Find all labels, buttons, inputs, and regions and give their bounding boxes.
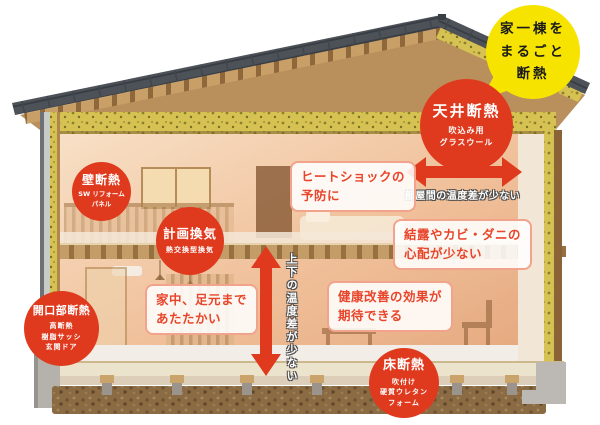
benefit-condensation: 結露やカビ・ダニの 心配が少ない xyxy=(393,219,532,270)
right-foundation-footing xyxy=(522,362,566,404)
whole-house-bubble: 家一棟を まるごと 断熱 xyxy=(486,5,580,99)
bubble-line: 家一棟を xyxy=(500,18,566,41)
benefit-line: 健康改善の効果が xyxy=(338,287,442,306)
benefit-health: 健康改善の効果が 期待できる xyxy=(327,281,453,332)
badge-subtitle: 吹付け xyxy=(392,377,416,388)
badge-subtitle: 吹込み用 xyxy=(449,125,485,137)
badge-subtitle: 熱交換型換気 xyxy=(166,245,214,256)
badge-subtitle: 玄関ドア xyxy=(46,342,78,353)
foundation xyxy=(34,330,566,414)
pendant-lamp xyxy=(155,274,165,280)
roof-left-slope xyxy=(12,15,444,115)
roof-ridge xyxy=(438,14,446,20)
window xyxy=(142,168,210,208)
benefit-heatshock: ヒートショックの 予防に xyxy=(290,161,416,212)
air-conditioner xyxy=(112,266,142,276)
bed xyxy=(300,216,404,240)
badge-subtitle: 高断熱 xyxy=(50,321,74,332)
badge-ceiling-insulation: 天井断熱 吹込み用 グラスウール xyxy=(420,79,513,172)
badge-title: 開口部断熱 xyxy=(33,304,91,318)
floor-piers xyxy=(100,375,519,395)
rafter-band xyxy=(24,26,445,124)
benefit-line: 予防に xyxy=(301,186,405,205)
benefit-line: 心配が少ない xyxy=(404,244,521,263)
badge-subtitle: 硬質ウレタン xyxy=(380,387,428,398)
badge-title: 計画換気 xyxy=(163,226,217,242)
cabinet xyxy=(256,166,292,238)
floor-structure xyxy=(40,361,564,385)
badge-wall-insulation: 壁断熱 SW リフォーム パネル xyxy=(72,162,131,221)
floor-insulation-layer xyxy=(40,363,564,376)
badge-title: 床断熱 xyxy=(383,358,425,374)
badge-floor-insulation: 床断熱 吹付け 硬質ウレタン フォーム xyxy=(369,348,439,418)
insulation-infographic: 家一棟を まるごと 断熱 天井断熱 吹込み用 グラスウール 壁断熱 SW リフォ… xyxy=(0,0,600,425)
benefit-line: 家中、足元まで xyxy=(156,290,247,309)
badge-title: 天井断熱 xyxy=(432,102,500,121)
bubble-line: 断熱 xyxy=(517,63,550,86)
badge-opening-insulation: 開口部断熱 高断熱 樹脂サッシ 玄関ドア xyxy=(24,291,99,366)
badge-title: 壁断熱 xyxy=(82,173,121,188)
gravel-bed xyxy=(52,386,546,414)
bubble-line: まるごと xyxy=(500,41,566,64)
badge-subtitle: 樹脂サッシ xyxy=(42,332,82,343)
badge-subtitle: フォーム xyxy=(388,398,420,409)
caption-vertical-temp-diff: 上下の温度差が少ない xyxy=(283,253,299,383)
benefit-line: 結露やカビ・ダニの xyxy=(404,225,521,244)
floor-beam-tab xyxy=(544,246,566,257)
badge-subtitle: パネル xyxy=(92,200,112,210)
badge-subtitle: SW リフォーム xyxy=(78,190,124,200)
benefit-line: あたたかい xyxy=(156,309,247,328)
benefit-warm-feet: 家中、足元まで あたたかい xyxy=(145,284,258,335)
badge-subtitle: グラスウール xyxy=(440,137,494,149)
benefit-line: ヒートショックの xyxy=(301,167,405,186)
benefit-line: 期待できる xyxy=(338,306,442,325)
badge-planned-ventilation: 計画換気 熱交換型換気 xyxy=(156,207,224,275)
